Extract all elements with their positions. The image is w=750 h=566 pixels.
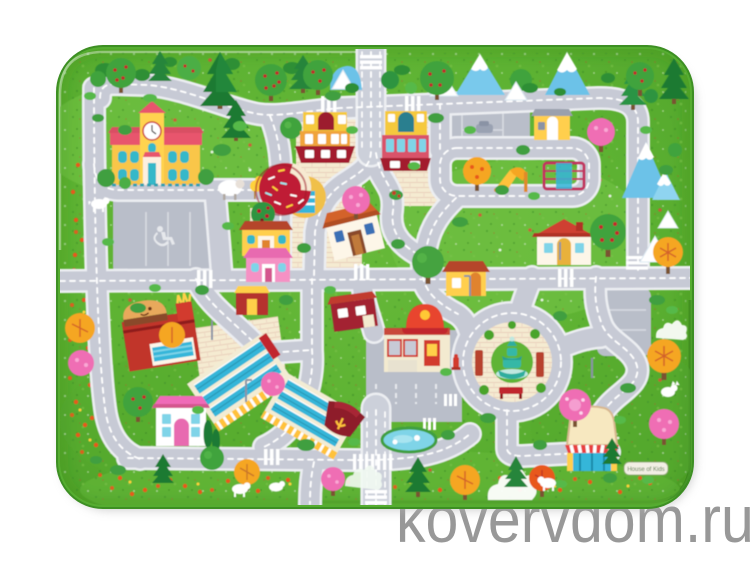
svg-text:House of Kids: House of Kids — [627, 467, 664, 473]
